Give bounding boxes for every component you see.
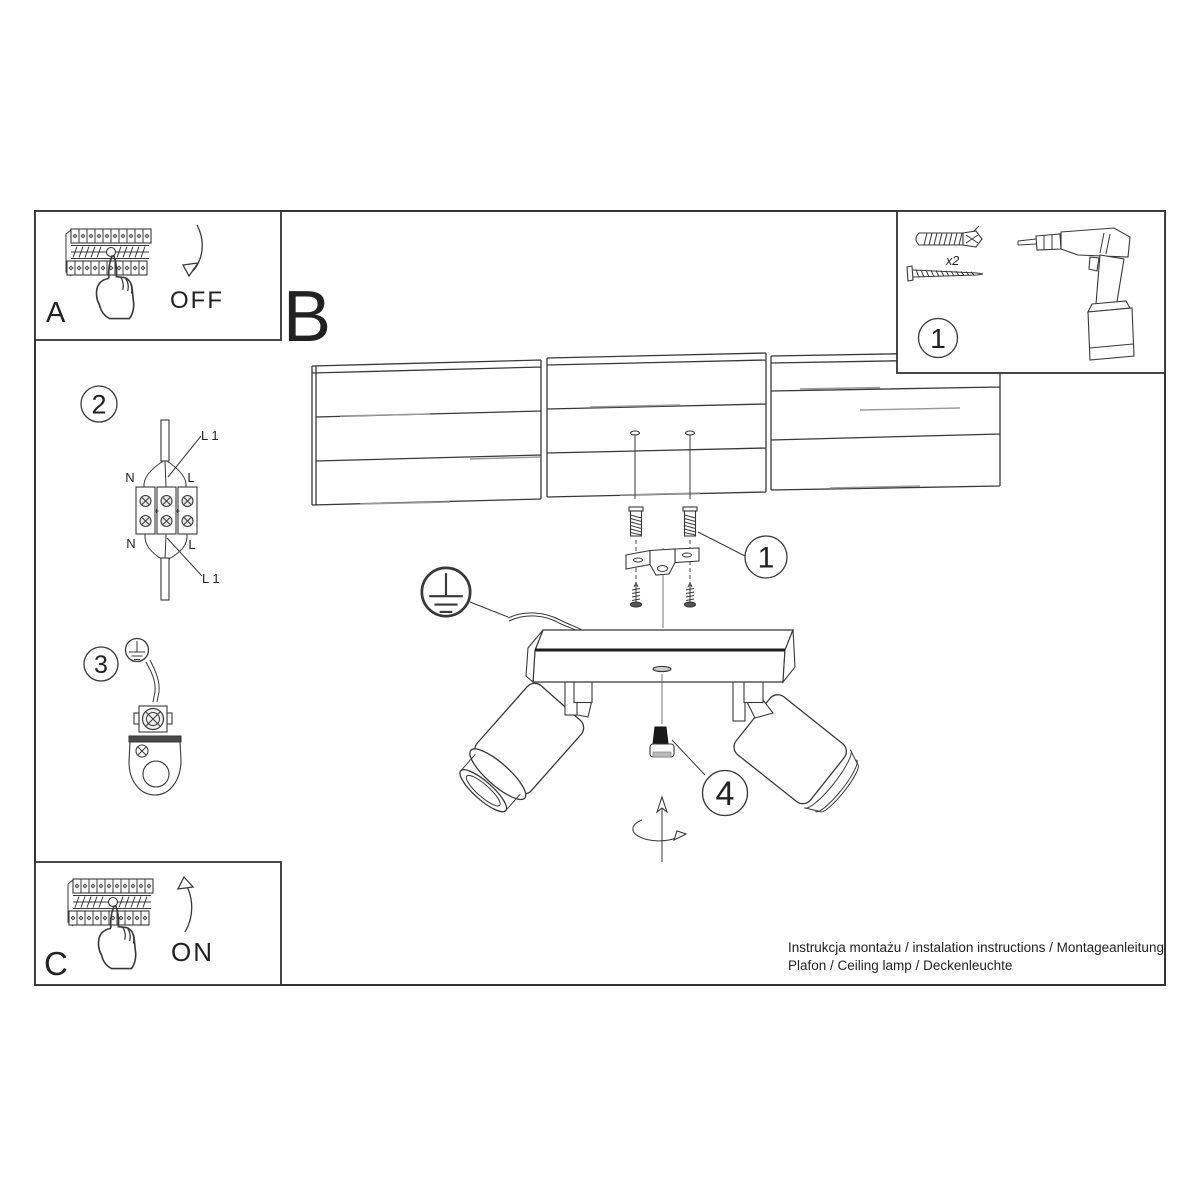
callout-1-number: 1 bbox=[758, 542, 775, 575]
footer-line-2: Plafon / Ceiling lamp / Deckenleuchte bbox=[788, 958, 1012, 973]
on-label: ON bbox=[171, 937, 214, 967]
section-b-label: B bbox=[283, 277, 331, 357]
knob-hole-icon bbox=[653, 666, 671, 671]
earth-ground-icon bbox=[422, 568, 470, 616]
callout-leader-line bbox=[672, 740, 705, 775]
off-label: OFF bbox=[170, 287, 224, 314]
wire-label-line-top: L bbox=[187, 470, 194, 485]
wall-plug-anchor-icon bbox=[629, 507, 643, 536]
panel-a: A OFF bbox=[35, 211, 281, 340]
mounting-plate-icon bbox=[129, 736, 181, 795]
wall-plug-anchor-icon bbox=[683, 507, 697, 536]
adjustment-knob-icon bbox=[650, 727, 674, 757]
wires-top bbox=[144, 461, 186, 487]
callout-leader-line bbox=[470, 602, 508, 617]
step-a-label: A bbox=[46, 297, 66, 329]
wood-grain-lines bbox=[340, 388, 960, 505]
ceiling-board-1 bbox=[312, 360, 541, 505]
lamp-assembly: 4 bbox=[422, 568, 867, 862]
callout-leader-line bbox=[698, 532, 745, 556]
supply-cable-icon bbox=[161, 420, 169, 461]
ceiling-board-2 bbox=[547, 353, 766, 497]
earth-ground-icon bbox=[126, 639, 149, 662]
ground-terminal-icon bbox=[134, 706, 172, 732]
wire-label-neutral-top: N bbox=[125, 470, 134, 485]
parts-box: x2 1 bbox=[897, 211, 1165, 373]
ceiling-planks-icon bbox=[312, 352, 1000, 505]
parts-callout-number: 1 bbox=[930, 323, 946, 354]
lamp-base-icon bbox=[526, 630, 795, 682]
terminal-block-icon bbox=[136, 487, 197, 534]
footer-line-1: Instrukcja montażu / instalation instruc… bbox=[788, 940, 1164, 955]
supply-cable-icon bbox=[161, 558, 169, 600]
rotation-arrow-icon bbox=[633, 797, 686, 862]
manual-page: A OFF B C ON 2 bbox=[0, 0, 1200, 1200]
leader-l1-top bbox=[168, 436, 201, 477]
ceiling-screw-icon bbox=[631, 431, 640, 499]
wire-label-neutral-bottom: N bbox=[126, 536, 135, 551]
wire-label-line-bottom: L bbox=[188, 537, 195, 552]
wiring-step: 2 L 1 N L N L L 1 bbox=[81, 386, 220, 600]
quantity-x2-label: x2 bbox=[945, 254, 959, 268]
wire-label-live-top: L 1 bbox=[201, 428, 219, 443]
grounding-step: 3 bbox=[84, 639, 181, 796]
mounting-bracket-icon bbox=[626, 548, 699, 575]
wires-bottom bbox=[145, 534, 187, 560]
mounting-hardware: 1 bbox=[626, 431, 787, 628]
callout-2-number: 2 bbox=[91, 390, 106, 420]
wire-label-live-bottom: L 1 bbox=[202, 571, 220, 586]
ceiling-screw-icon bbox=[686, 431, 695, 499]
callout-4-number: 4 bbox=[716, 775, 735, 813]
fixing-screw-icon bbox=[685, 583, 696, 607]
panel-c: C ON bbox=[35, 862, 281, 985]
fixing-screw-icon bbox=[631, 583, 642, 607]
step-c-label: C bbox=[44, 945, 68, 982]
callout-3-number: 3 bbox=[94, 651, 108, 679]
footer: Instrukcja montażu / instalation instruc… bbox=[788, 940, 1164, 973]
ground-wire-icon bbox=[146, 660, 159, 702]
